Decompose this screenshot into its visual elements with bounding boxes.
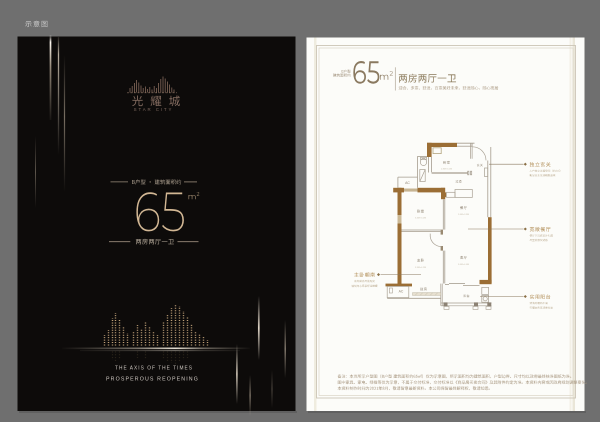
svg-text:THE AXIS OF THE TIMES: THE AXIS OF THE TIMES: [115, 365, 193, 371]
svg-text:AC: AC: [399, 290, 404, 294]
svg-text:STAR CITY: STAR CITY: [134, 107, 174, 112]
svg-text:PROSPEROUS REOPENING: PROSPEROUS REOPENING: [106, 377, 199, 383]
svg-text:AC: AC: [405, 181, 410, 185]
svg-text:3.3M×4.2M: 3.3M×4.2M: [415, 266, 426, 269]
svg-text:3.6M×4.0M: 3.6M×4.0M: [458, 263, 469, 266]
svg-text:2.6M×3.3M: 2.6M×3.3M: [458, 213, 469, 216]
svg-text:3.3M×3.2M: 3.3M×3.2M: [415, 217, 426, 220]
svg-text:2.8M×3.1M: 2.8M×3.1M: [441, 168, 452, 171]
